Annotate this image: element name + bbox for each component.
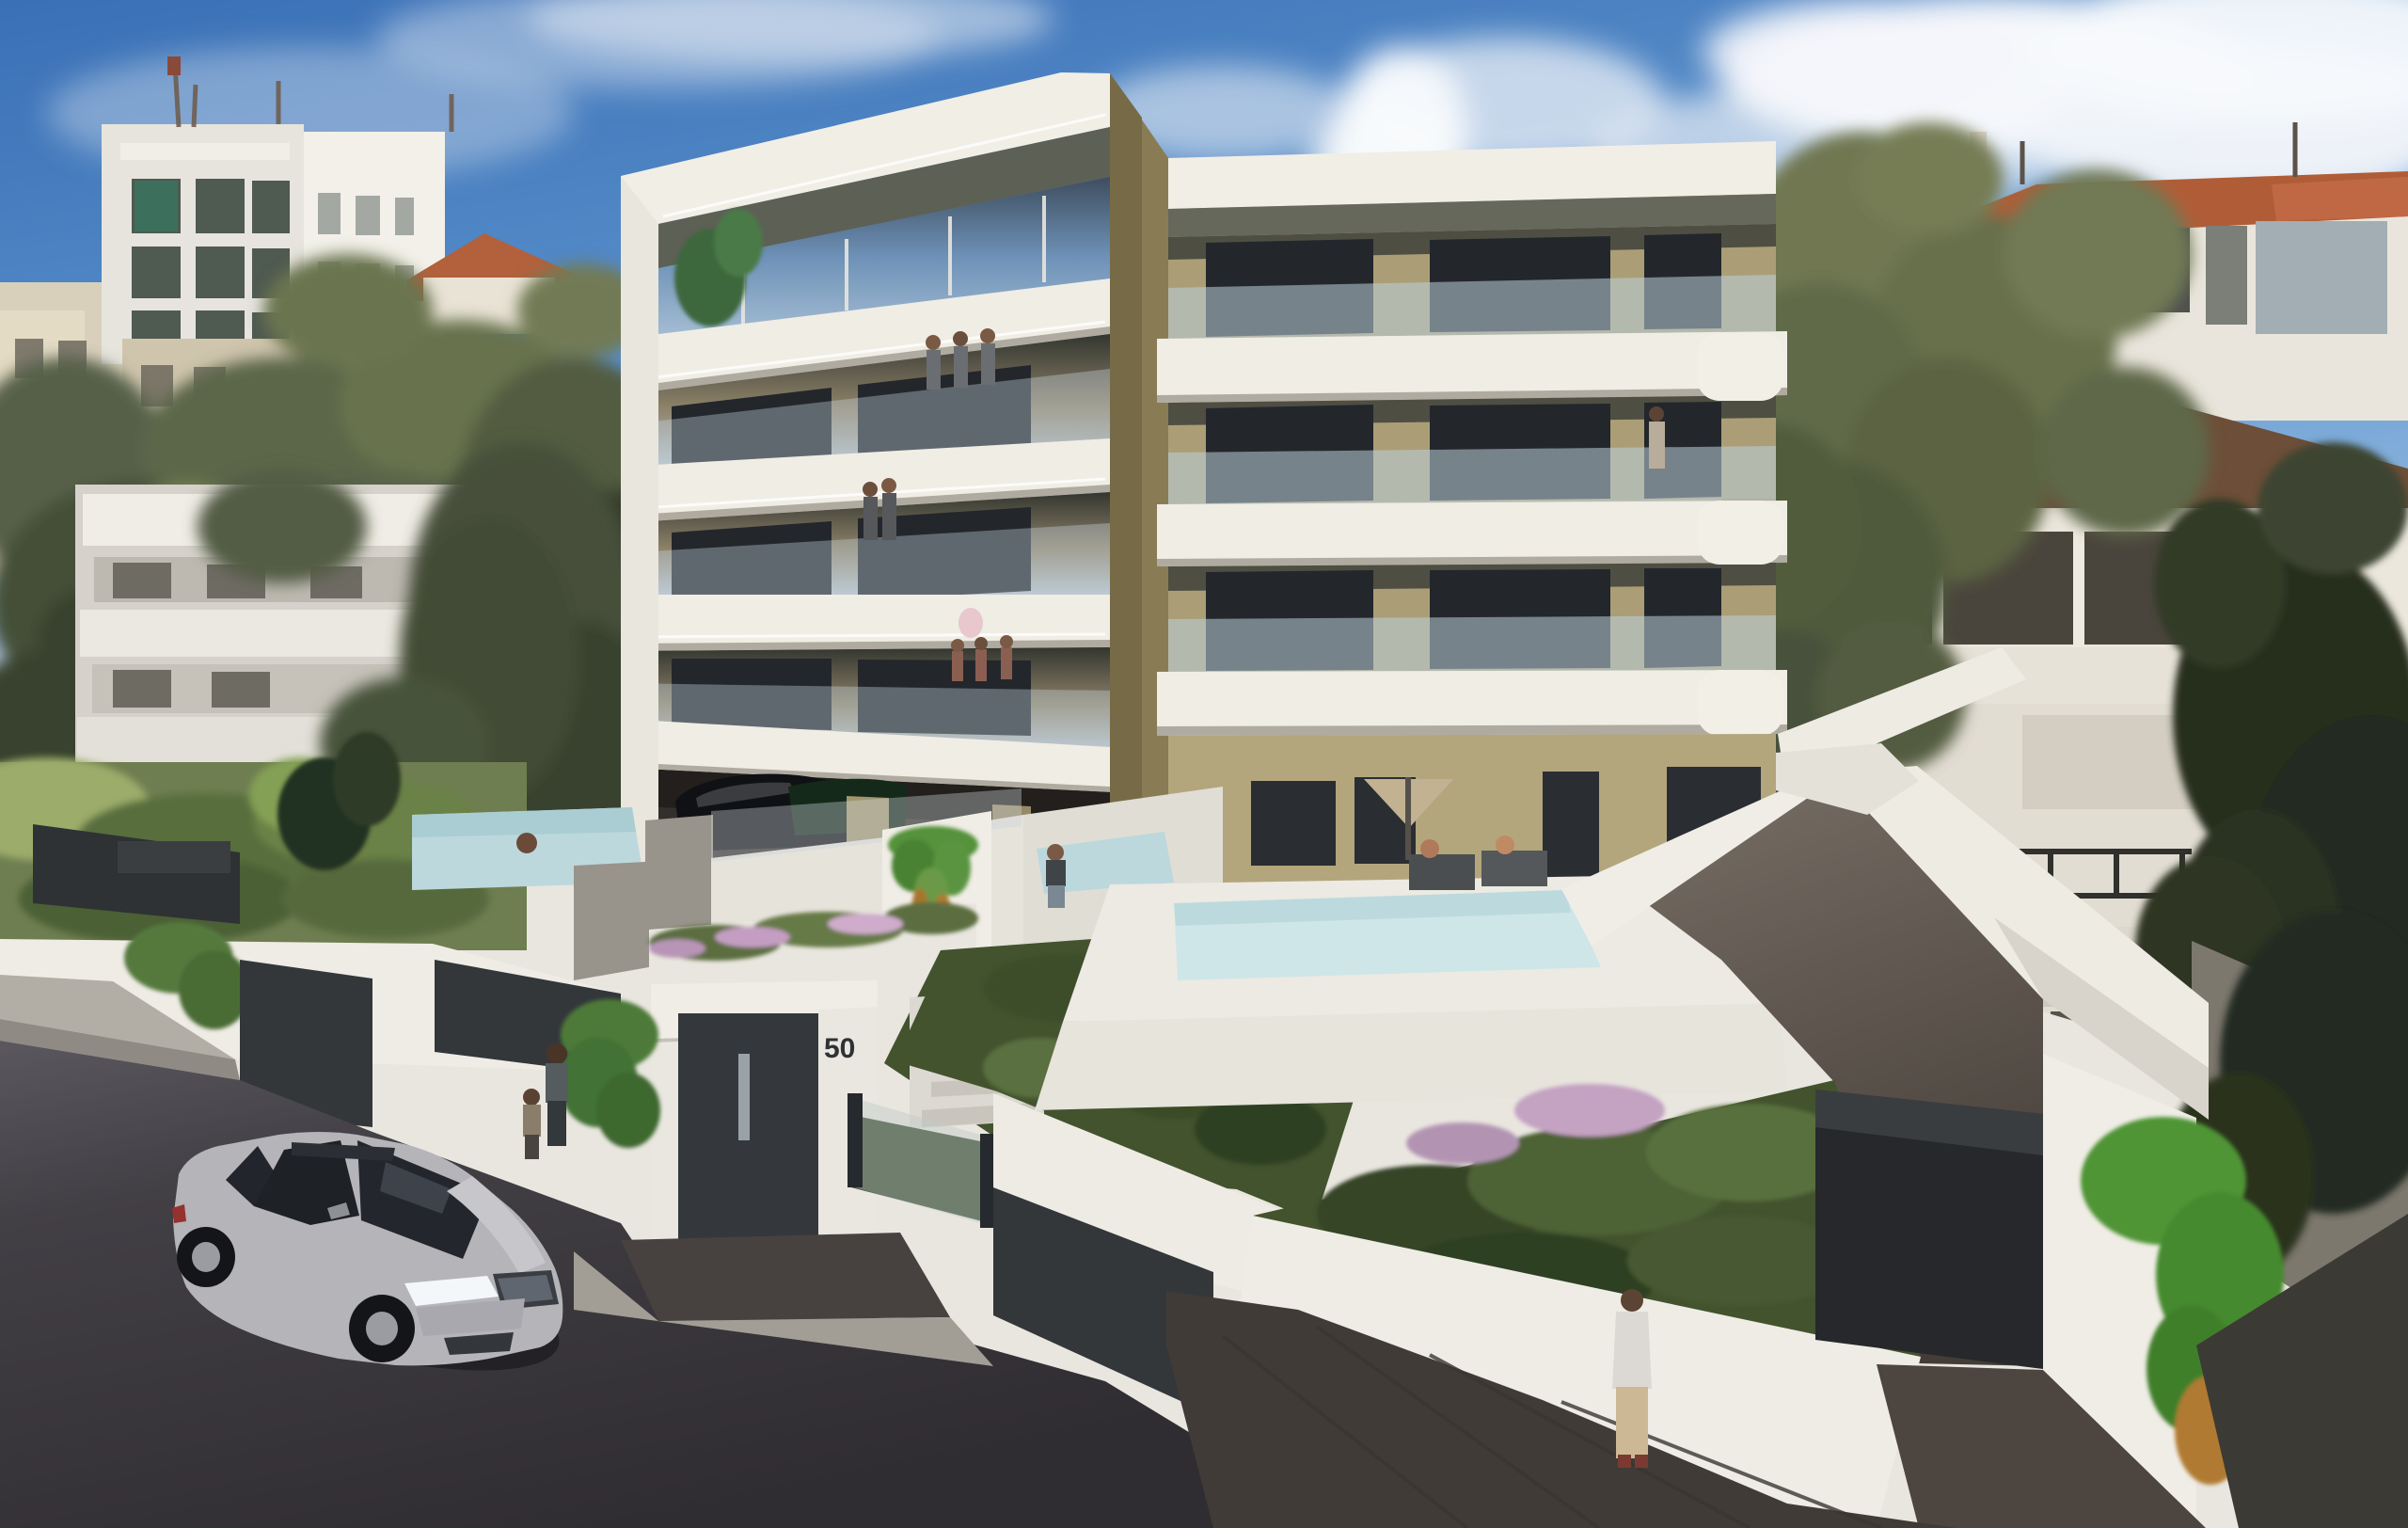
svg-text:50: 50 xyxy=(824,1033,855,1064)
